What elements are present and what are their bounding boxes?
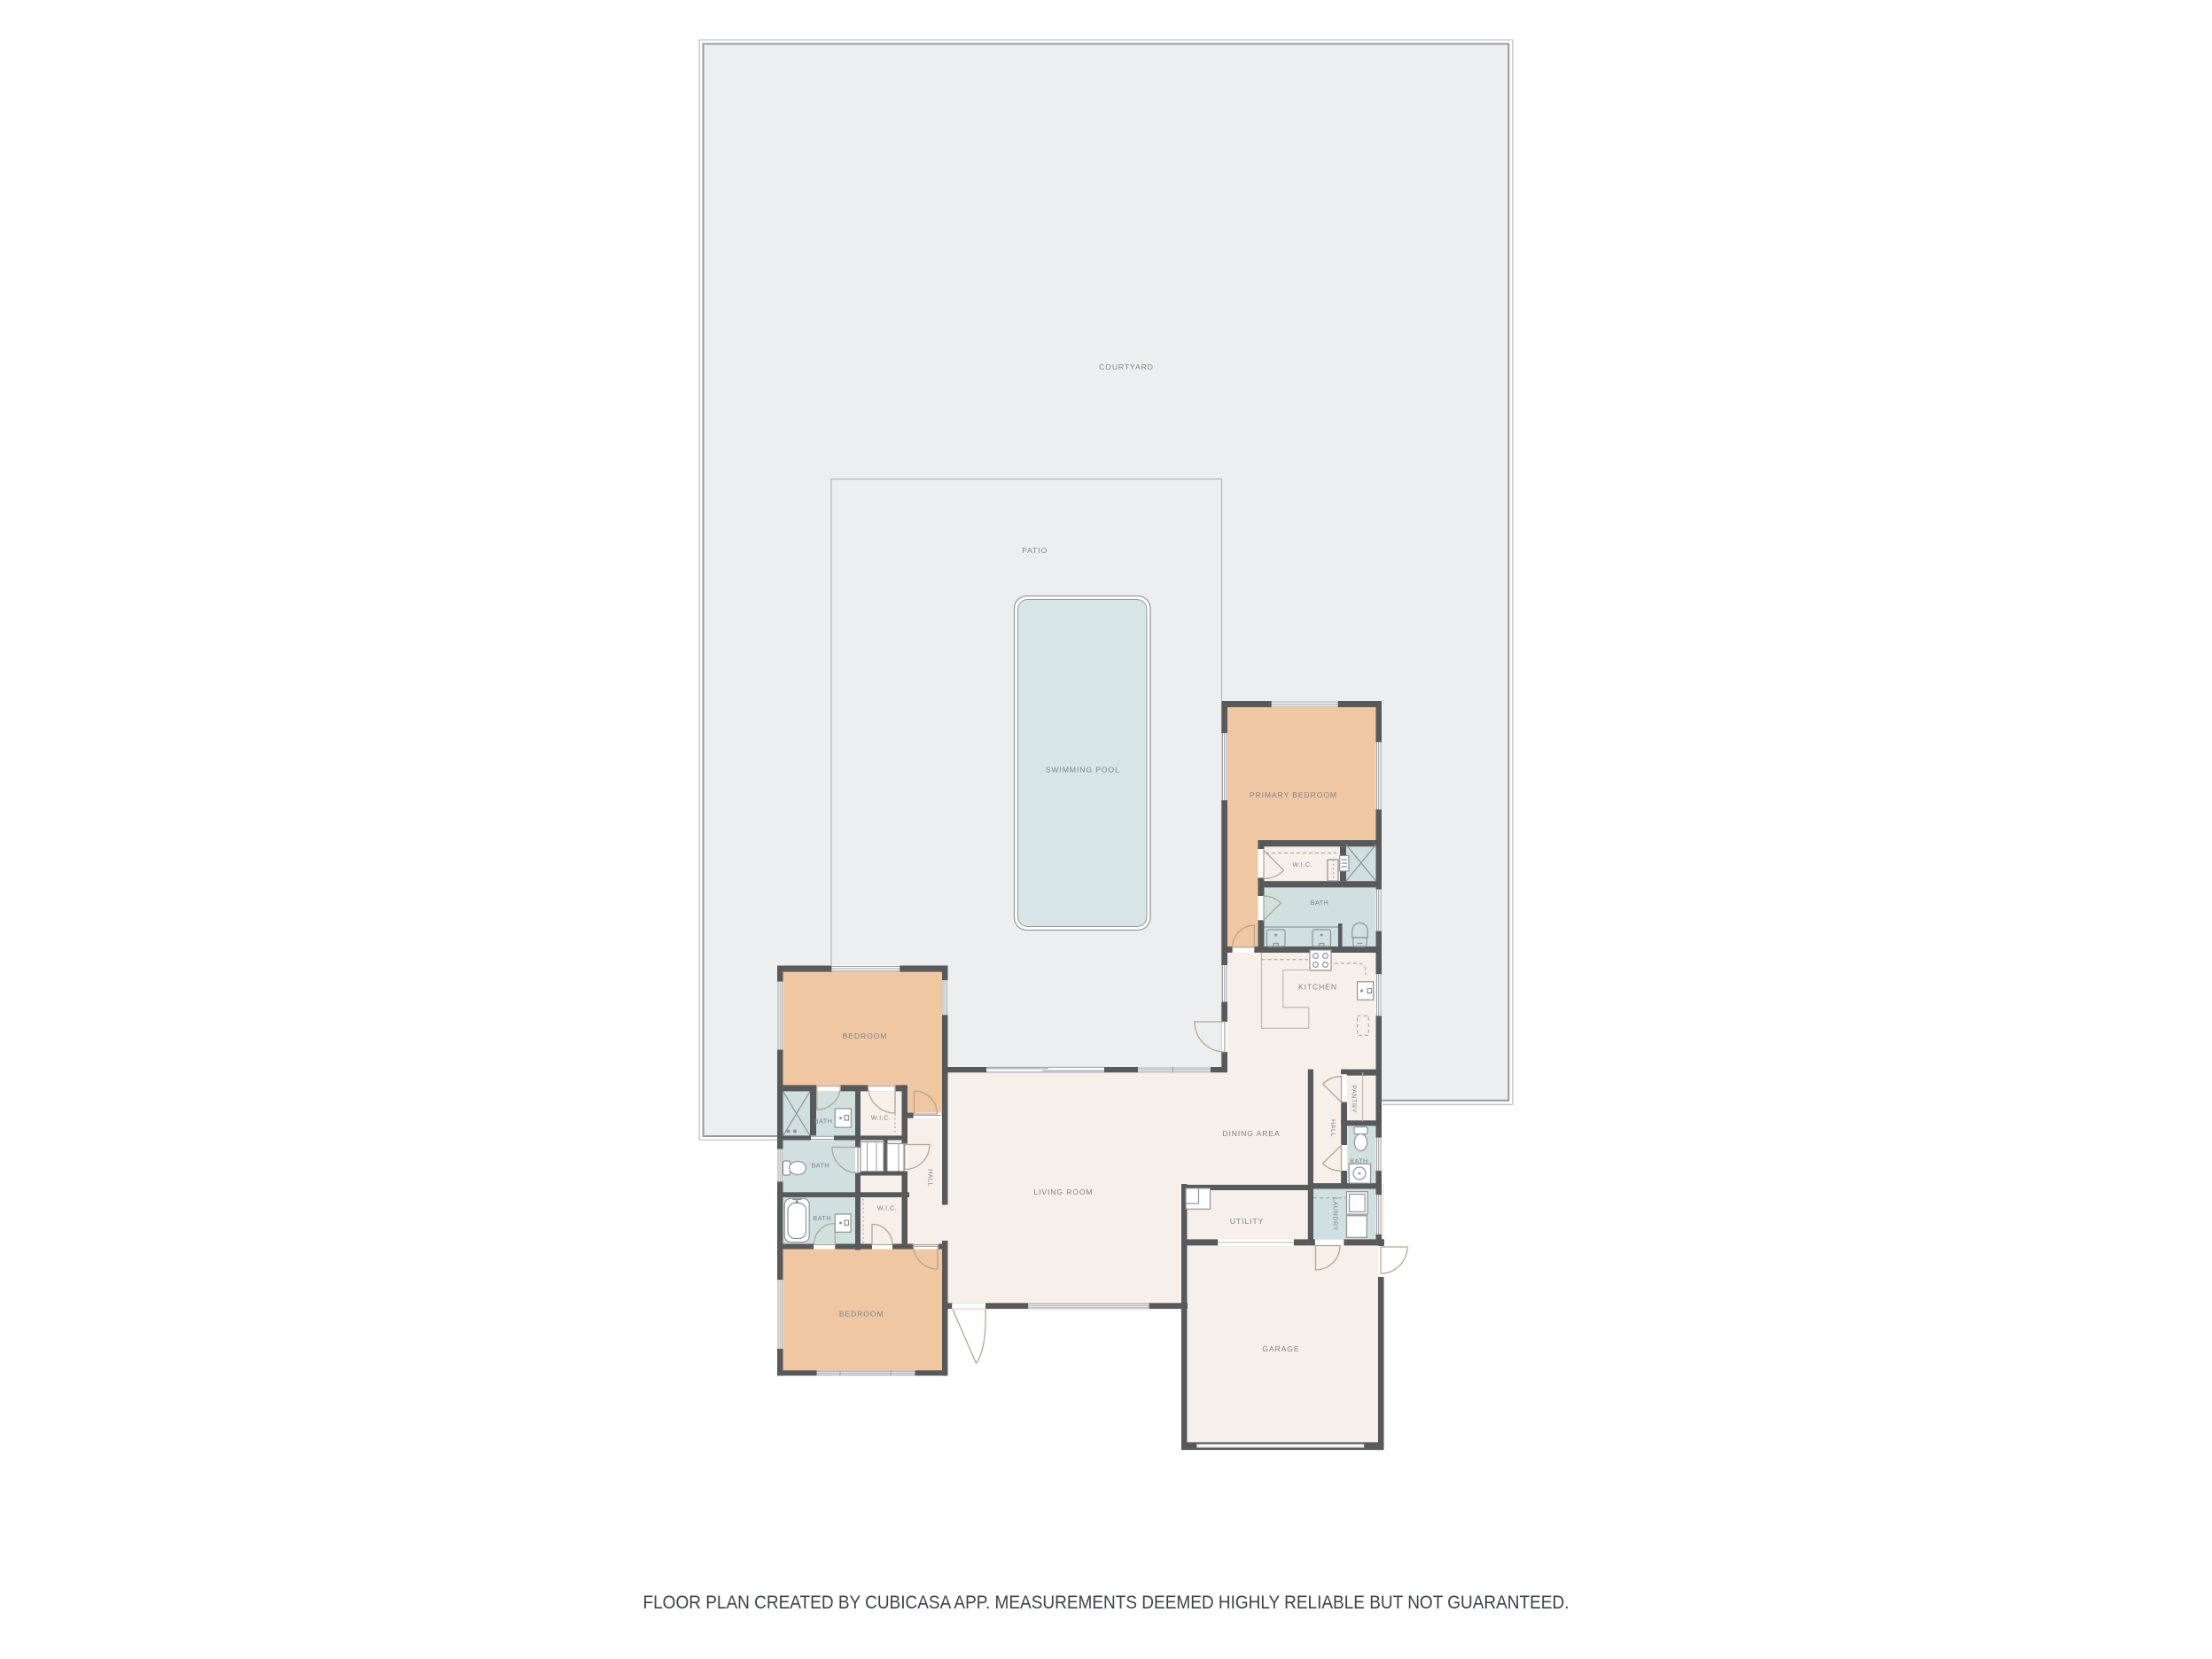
svg-text:BEDROOM: BEDROOM [839, 1310, 884, 1319]
svg-text:UTILITY: UTILITY [1230, 1217, 1264, 1226]
svg-text:BATH: BATH [813, 1214, 831, 1222]
svg-text:W.I.C.: W.I.C. [877, 1204, 898, 1212]
svg-text:LIVING ROOM: LIVING ROOM [1033, 1188, 1093, 1196]
svg-text:SWIMMING POOL: SWIMMING POOL [1046, 766, 1120, 775]
svg-text:PRIMARY BEDROOM: PRIMARY BEDROOM [1250, 791, 1337, 799]
svg-text:HALL: HALL [927, 1169, 935, 1187]
svg-text:FLOOR PLAN CREATED BY CUBICASA: FLOOR PLAN CREATED BY CUBICASA APP. MEAS… [643, 1593, 1569, 1613]
svg-text:HALL: HALL [1329, 1119, 1337, 1137]
svg-text:PANTRY: PANTRY [1351, 1085, 1359, 1113]
svg-text:W.I.C.: W.I.C. [1292, 861, 1312, 868]
svg-text:PATIO: PATIO [1022, 546, 1048, 555]
svg-text:W.I.C.: W.I.C. [871, 1114, 892, 1122]
svg-text:LAUNDRY: LAUNDRY [1332, 1197, 1340, 1231]
svg-text:GARAGE: GARAGE [1262, 1344, 1299, 1353]
svg-text:COURTYARD: COURTYARD [1099, 362, 1154, 371]
svg-text:BATH: BATH [814, 1118, 833, 1125]
svg-text:BATH: BATH [1311, 899, 1329, 907]
svg-text:DINING AREA: DINING AREA [1222, 1129, 1280, 1138]
svg-text:BEDROOM: BEDROOM [843, 1032, 888, 1040]
svg-text:KITCHEN: KITCHEN [1298, 983, 1337, 992]
svg-text:BATH: BATH [1350, 1157, 1368, 1165]
svg-text:BATH: BATH [811, 1162, 829, 1170]
